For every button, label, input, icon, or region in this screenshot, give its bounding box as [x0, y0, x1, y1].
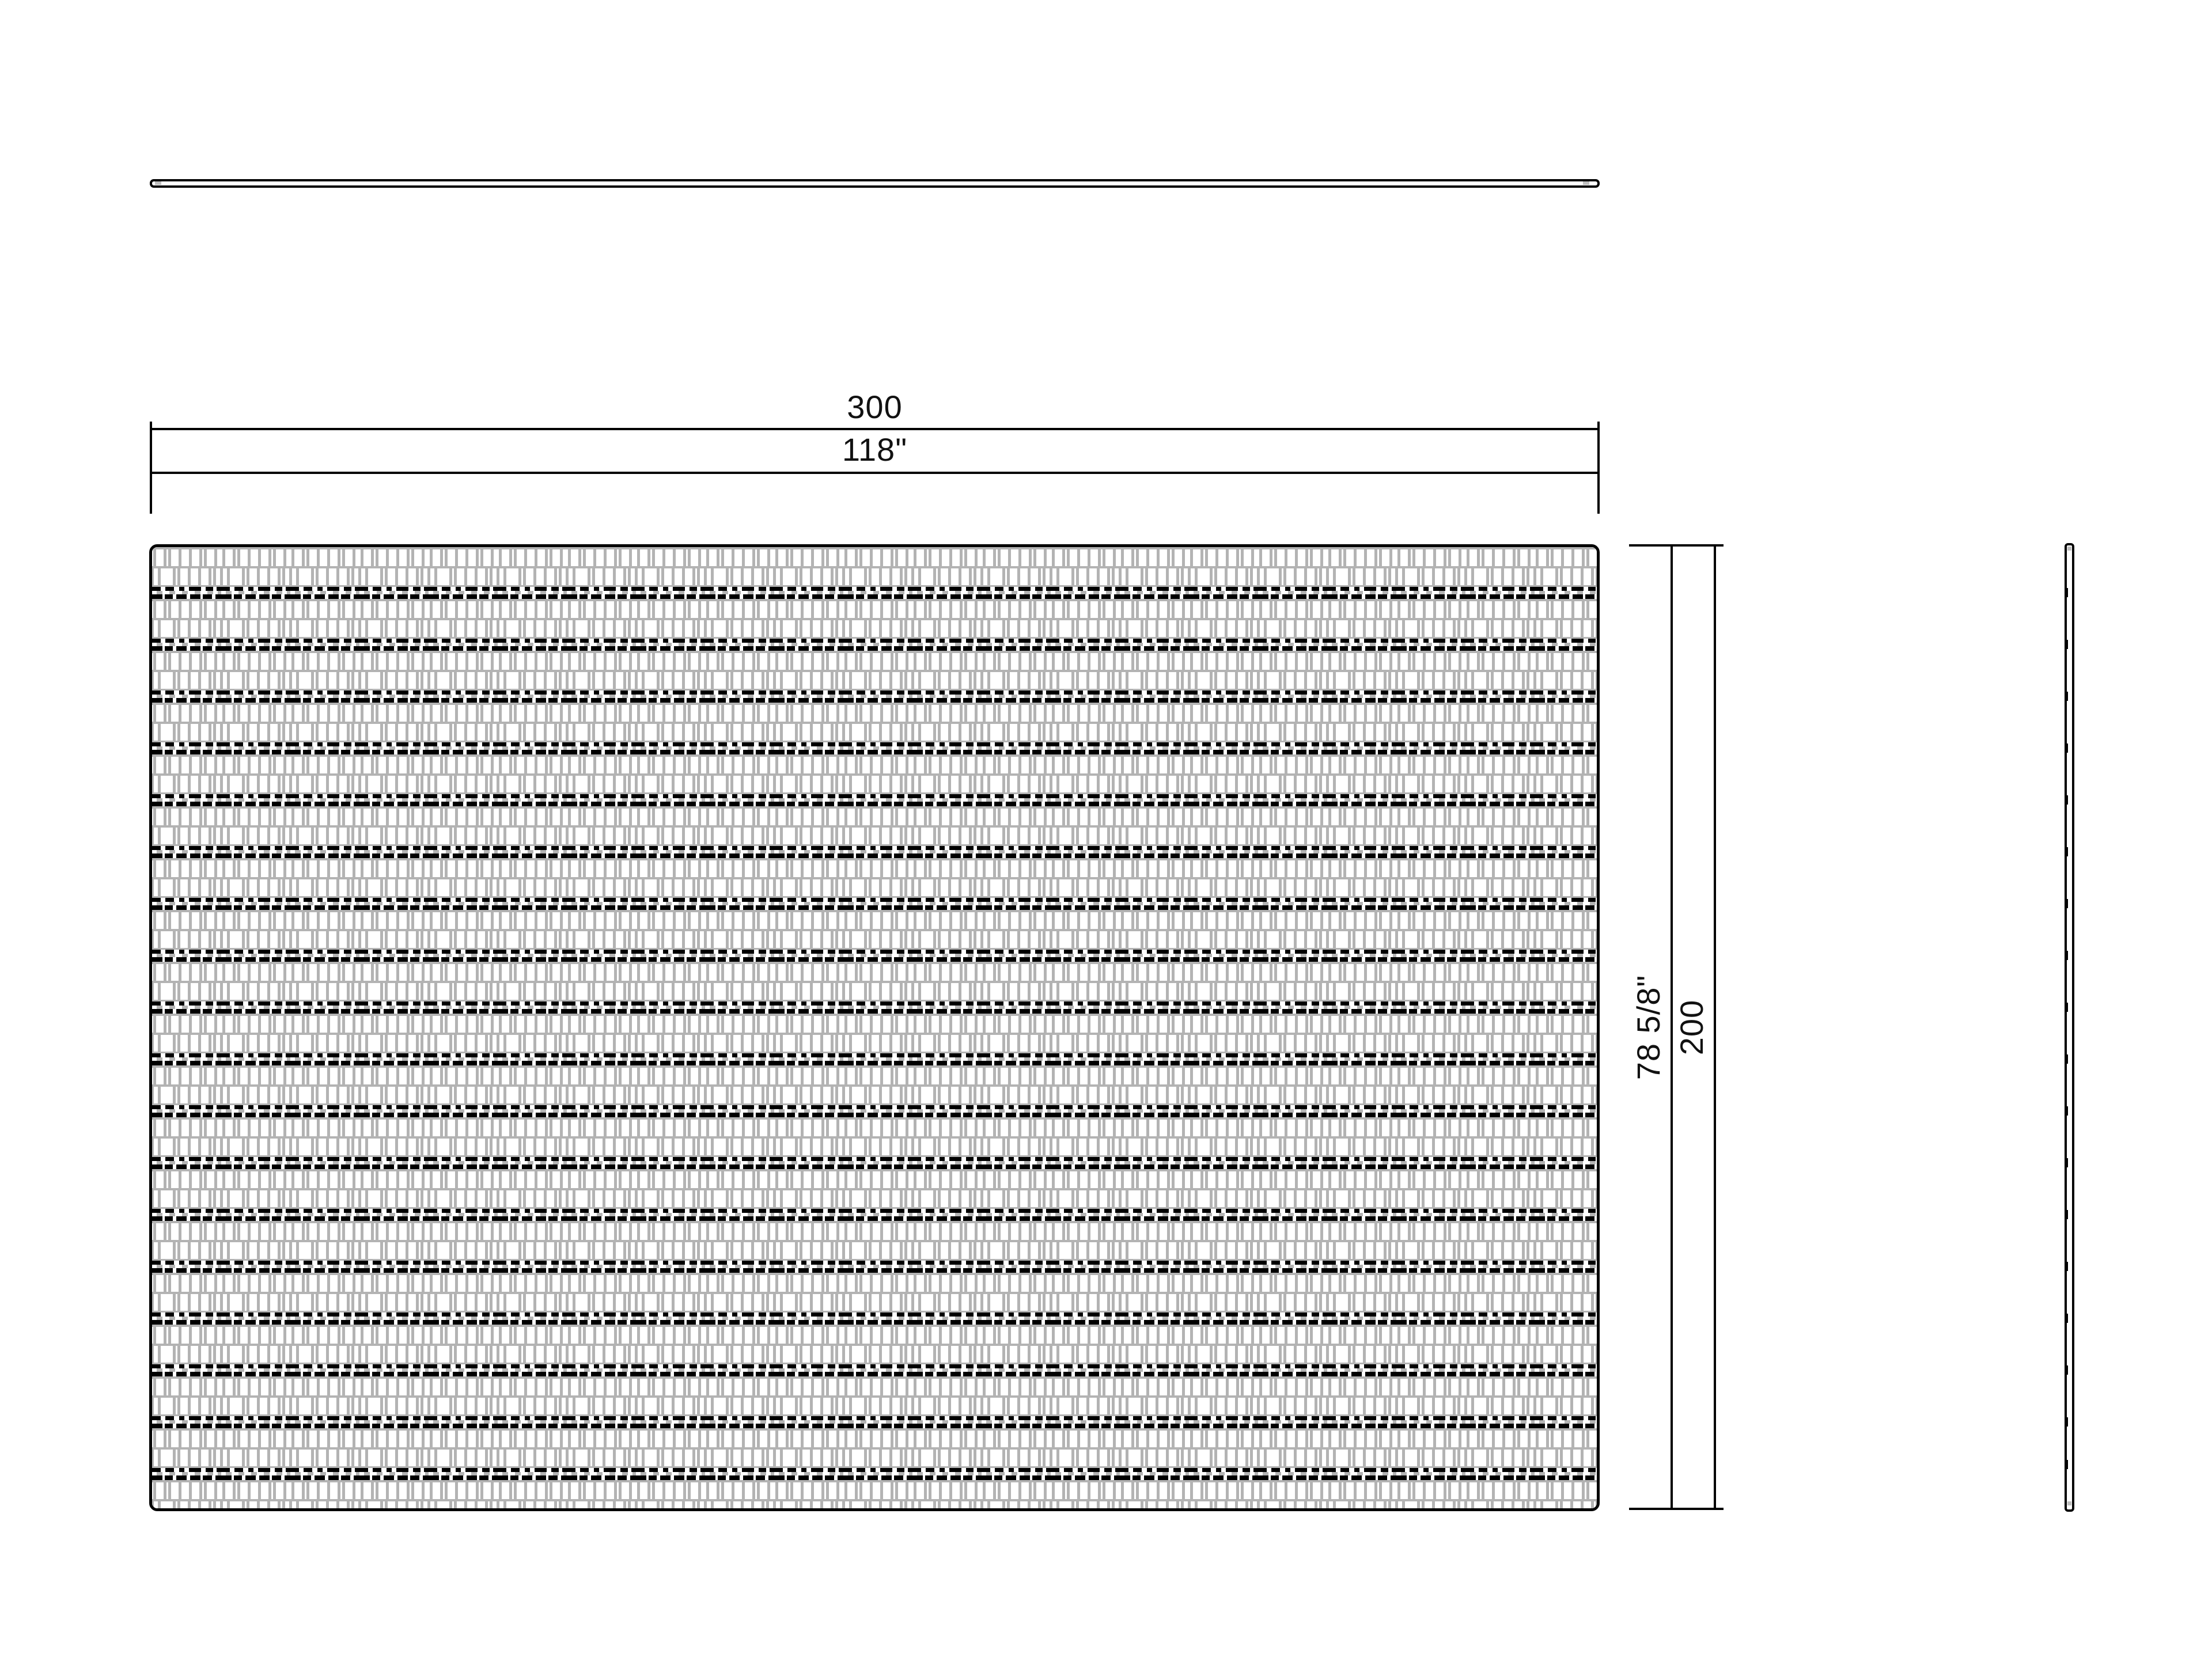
- rug-texture: [152, 547, 1597, 1508]
- height-extension-line-top: [1629, 544, 1724, 547]
- rug-side-edge-profile: [2065, 543, 2075, 1512]
- height-dimension-line-cm: [1714, 544, 1716, 1510]
- height-dimension-label-cm: 200: [1673, 797, 1710, 1258]
- drawing-canvas: 300 118": [0, 0, 2212, 1654]
- rug-top-edge-profile: [150, 179, 1600, 188]
- top-profile-end-notch-right: [1583, 181, 1589, 185]
- height-dimension-line-in: [1671, 544, 1673, 1510]
- top-profile-end-notch-left: [155, 181, 161, 185]
- width-dimension-line-in: [150, 472, 1600, 474]
- side-profile-end-notch-top: [2067, 547, 2071, 551]
- side-profile-end-notch-bottom: [2067, 1501, 2071, 1505]
- width-dimension-label-in: 118": [150, 432, 1600, 468]
- width-dimension-label-cm: 300: [150, 389, 1600, 425]
- height-dimension-label-in: 78 5/8": [1630, 797, 1667, 1258]
- rug-plan-view: [149, 544, 1600, 1511]
- height-extension-line-bottom: [1629, 1508, 1724, 1510]
- width-dimension-line-cm: [150, 428, 1600, 430]
